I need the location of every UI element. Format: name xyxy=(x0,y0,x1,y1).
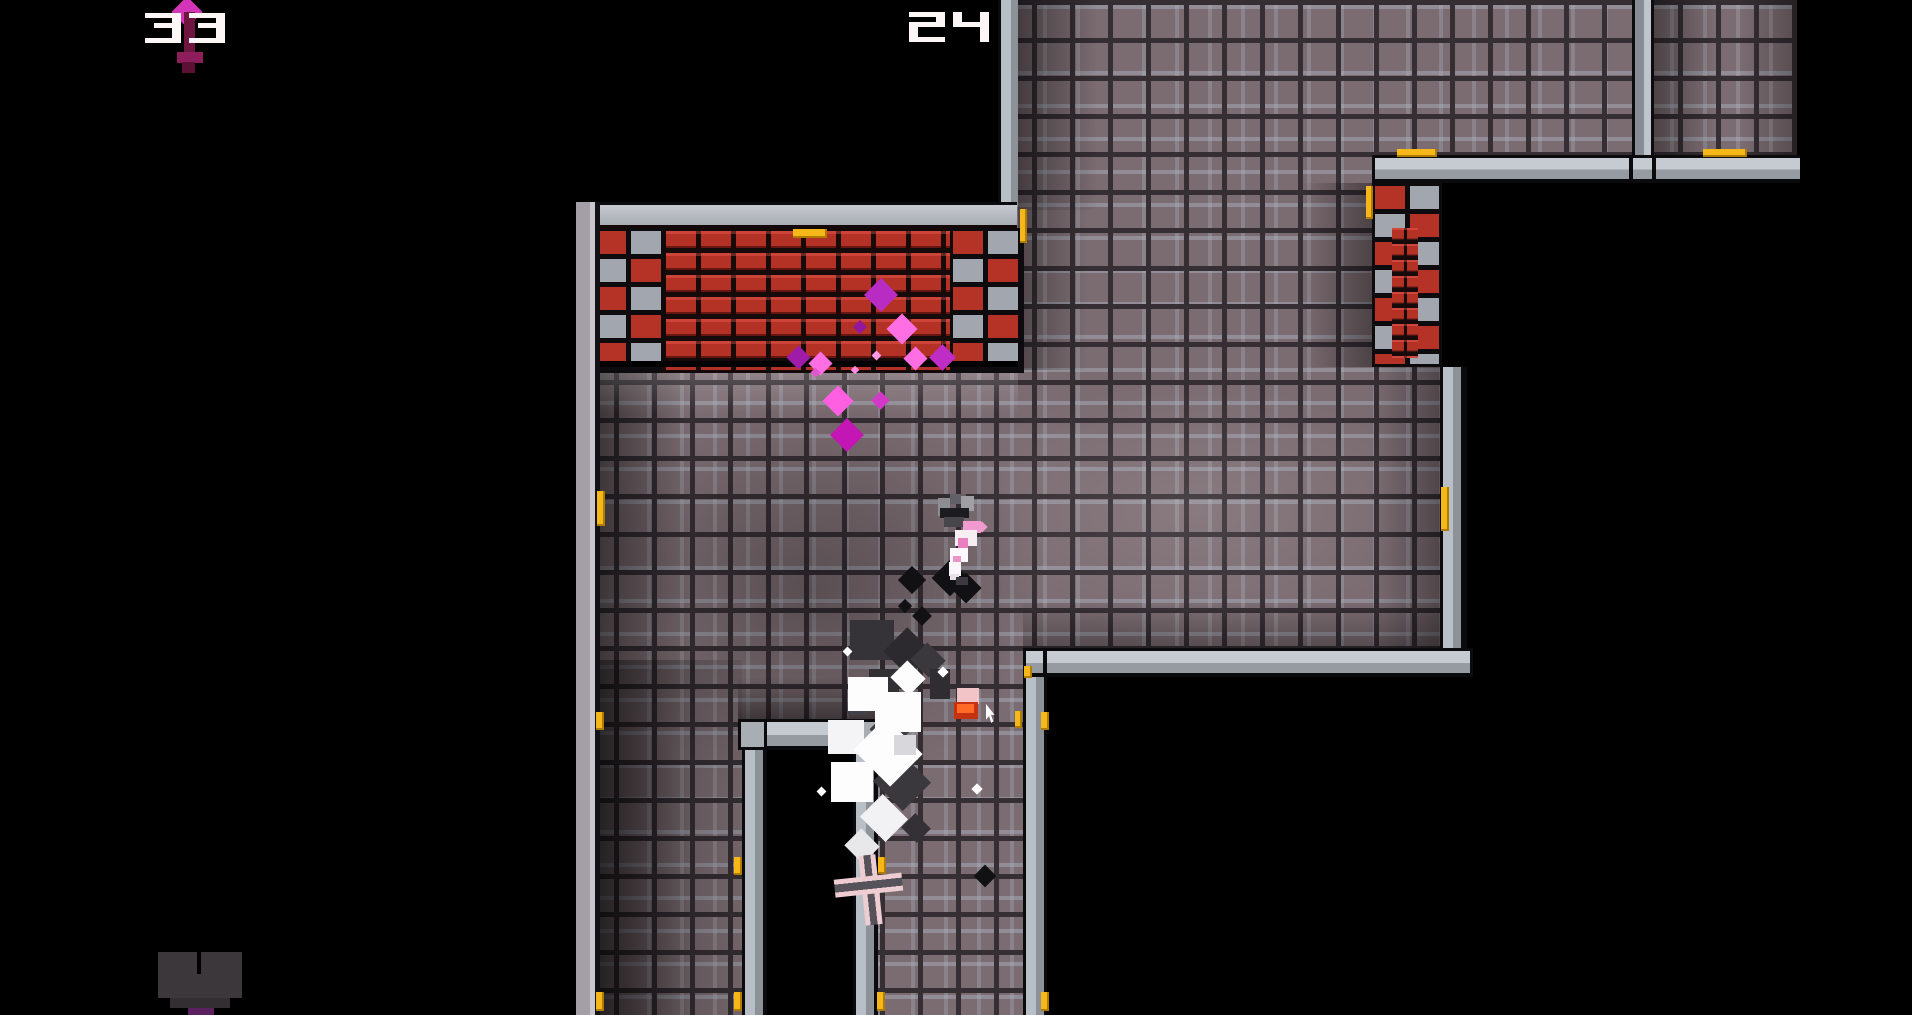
pixel-digit xyxy=(918,37,927,42)
pixel-digit xyxy=(918,12,927,17)
pixel-digit xyxy=(145,13,154,18)
heart-pickup xyxy=(158,950,242,1015)
blood-particle xyxy=(864,278,898,312)
game-viewport[interactable] xyxy=(0,0,1912,1015)
door-marker xyxy=(1024,666,1032,678)
blood-particle xyxy=(851,366,859,374)
door-marker xyxy=(734,857,742,875)
pixel-digit xyxy=(207,23,216,28)
pixel-digit xyxy=(154,13,163,18)
door-marker xyxy=(734,992,742,1011)
pixel-digit xyxy=(163,23,172,28)
pixel-digit xyxy=(962,22,971,27)
door-marker xyxy=(1441,487,1449,531)
debris-particle xyxy=(898,599,912,613)
cross-weapon xyxy=(831,850,908,931)
cross-horizontal xyxy=(834,873,904,898)
heart-tip xyxy=(188,1008,214,1015)
pixel-digit xyxy=(163,13,172,18)
door-marker xyxy=(1397,149,1437,157)
door-marker xyxy=(1015,711,1022,728)
dagger-icon xyxy=(184,12,195,54)
pixel-digit xyxy=(953,22,962,27)
pixel-digit xyxy=(909,37,918,42)
pixel-digit xyxy=(971,22,980,27)
heart-body xyxy=(158,974,242,998)
blood-particle xyxy=(871,391,889,409)
heart-lobe xyxy=(158,952,197,974)
blood-particle xyxy=(886,313,917,344)
character-shadow xyxy=(956,577,968,585)
dagger-icon xyxy=(182,62,195,73)
door-marker xyxy=(878,857,886,874)
smoke-puff-white xyxy=(894,735,916,755)
spark-particle xyxy=(971,783,982,794)
pixel-digit xyxy=(927,12,936,17)
door-marker xyxy=(1041,712,1049,730)
pixel-digit xyxy=(189,38,198,43)
dropped-hat-glow xyxy=(957,704,974,713)
pixel-digit xyxy=(927,22,936,27)
door-marker xyxy=(597,491,605,526)
debris-particle xyxy=(898,566,926,594)
debris-particle xyxy=(912,606,932,626)
debris-particle xyxy=(974,865,997,888)
blood-particle xyxy=(822,385,853,416)
door-marker xyxy=(596,992,604,1011)
spark-particle xyxy=(816,786,826,796)
pixel-digit xyxy=(918,22,927,27)
pixel-digit xyxy=(154,23,163,28)
pixel-digit xyxy=(145,38,154,43)
character-head xyxy=(944,517,964,527)
pixel-digit xyxy=(207,38,216,43)
pixel-digit xyxy=(154,38,163,43)
pixel-digit xyxy=(163,38,172,43)
blood-particle xyxy=(871,350,881,360)
pixel-digit xyxy=(936,22,945,27)
pixel-digit xyxy=(198,13,207,18)
blood-particle xyxy=(853,320,867,334)
player-character xyxy=(936,494,988,586)
pixel-digit xyxy=(216,38,225,43)
pixel-digit xyxy=(207,13,216,18)
pixel-digit xyxy=(909,12,918,17)
blood-particle xyxy=(903,346,927,370)
pixel-digit xyxy=(189,13,198,18)
pixel-digit xyxy=(172,38,181,43)
blood-particle xyxy=(830,418,864,452)
pixel-digit xyxy=(980,37,989,42)
pixel-digit xyxy=(927,37,936,42)
door-marker xyxy=(596,712,604,730)
door-marker xyxy=(1366,186,1373,219)
heart-lobe xyxy=(201,952,242,974)
door-marker xyxy=(1041,992,1049,1011)
blood-particle xyxy=(929,344,956,371)
pixel-digit xyxy=(936,37,945,42)
character-torso xyxy=(958,538,968,548)
door-marker xyxy=(1703,149,1747,157)
door-marker xyxy=(793,229,827,238)
heart-body xyxy=(170,998,230,1008)
blood-particle xyxy=(786,345,810,369)
smoke-puff-white xyxy=(831,762,873,802)
pixel-digit xyxy=(198,38,207,43)
door-marker xyxy=(877,992,885,1011)
dropped-hat xyxy=(953,687,979,723)
pixel-digit xyxy=(198,23,207,28)
door-marker xyxy=(1020,209,1027,243)
